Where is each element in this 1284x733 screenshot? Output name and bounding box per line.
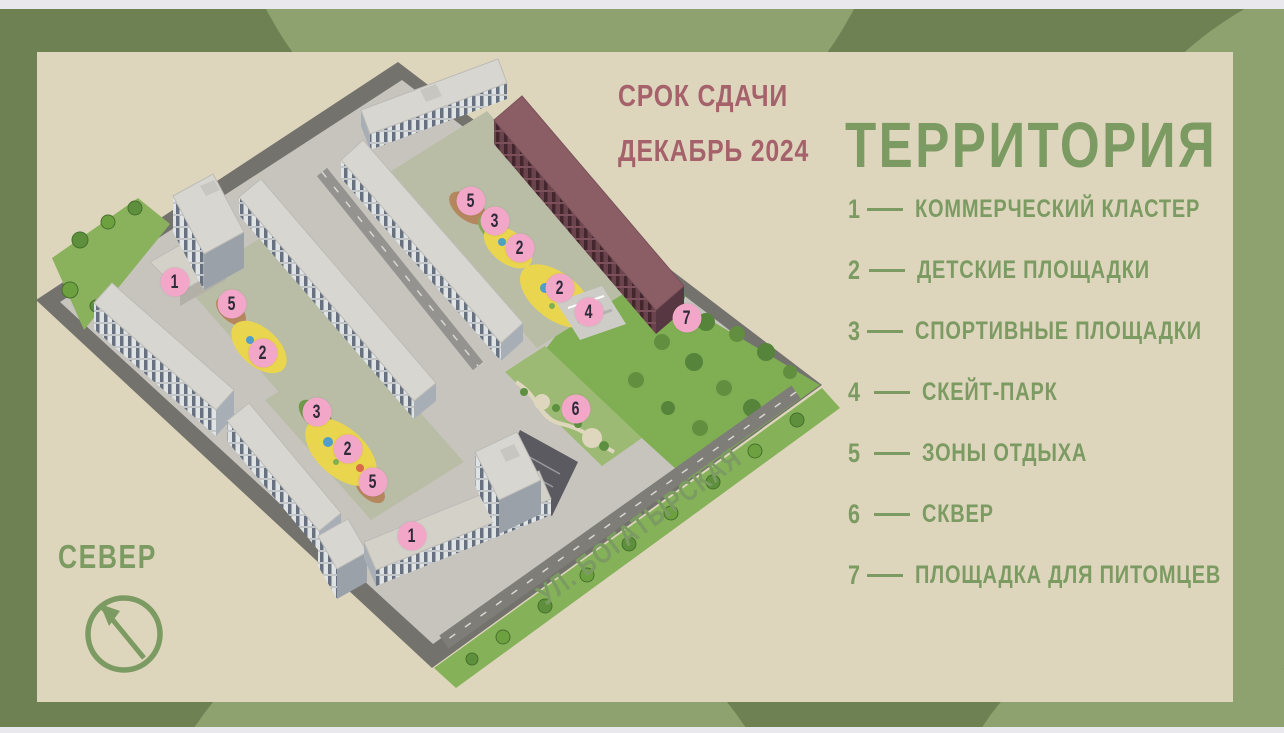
legend-item-dash — [867, 574, 903, 577]
legend-item-label: ДЕТСКИЕ ПЛОЩАДКИ — [917, 256, 1150, 285]
territory-legend: 1 КОММЕРЧЕСКИЙ КЛАСТЕР 2 ДЕТСКИЕ ПЛОЩАДК… — [848, 196, 1208, 623]
legend-item-dash — [869, 269, 905, 272]
legend-item: 4 СКЕЙТ-ПАРК — [848, 379, 1208, 405]
legend-item: 6 СКВЕР — [848, 501, 1208, 527]
legend-item-number: 4 — [848, 377, 860, 408]
map-marker: 2 — [334, 435, 363, 464]
north-label: СЕВЕР — [58, 538, 182, 576]
map-marker: 2 — [546, 274, 575, 303]
legend-item-number: 6 — [848, 499, 860, 530]
legend-item-dash — [874, 391, 910, 394]
map-marker: 5 — [457, 187, 486, 216]
map-marker: 1 — [161, 268, 190, 297]
map-marker: 6 — [562, 395, 591, 424]
territory-title: ТЕРРИТОРИЯ — [845, 108, 1284, 182]
legend-item-label: ПЛОЩАДКА ДЛЯ ПИТОМЦЕВ — [915, 561, 1221, 590]
legend-item-dash — [867, 208, 903, 211]
legend-item-number: 7 — [848, 560, 860, 591]
legend-item-dash — [867, 330, 903, 333]
map-marker: 3 — [481, 207, 510, 236]
legend-item-label: СКВЕР — [922, 500, 994, 529]
legend-item-number: 2 — [848, 255, 860, 286]
legend-item-label: СКЕЙТ-ПАРК — [922, 378, 1058, 407]
map-marker: 5 — [359, 468, 388, 497]
map-marker: 4 — [575, 298, 604, 327]
legend-item-number: 5 — [848, 438, 860, 469]
slide-canvas: { "colors": { "frame_green": "#6d8153", … — [0, 0, 1284, 733]
map-marker: 2 — [506, 234, 535, 263]
legend-item-number: 1 — [848, 194, 860, 225]
legend-item-number: 3 — [848, 316, 860, 347]
legend-item-label: КОММЕРЧЕСКИЙ КЛАСТЕР — [915, 195, 1200, 224]
text-overlay: СРОК СДАЧИ ДЕКАБРЬ 2024 ТЕРРИТОРИЯ 1 КОМ… — [0, 0, 1284, 733]
map-marker: 2 — [249, 339, 278, 368]
map-marker: 7 — [673, 304, 702, 333]
map-marker: 3 — [303, 398, 332, 427]
legend-item-label: СПОРТИВНЫЕ ПЛОЩАДКИ — [915, 317, 1202, 346]
completion-note-line2: ДЕКАБРЬ 2024 — [618, 123, 809, 178]
legend-item: 2 ДЕТСКИЕ ПЛОЩАДКИ — [848, 257, 1208, 283]
legend-item: 5 ЗОНЫ ОТДЫХА — [848, 440, 1208, 466]
completion-note: СРОК СДАЧИ ДЕКАБРЬ 2024 — [618, 68, 857, 178]
legend-item: 7 ПЛОЩАДКА ДЛЯ ПИТОМЦЕВ — [848, 562, 1208, 588]
map-marker: 5 — [218, 290, 247, 319]
completion-note-line1: СРОК СДАЧИ — [618, 68, 788, 123]
legend-item: 1 КОММЕРЧЕСКИЙ КЛАСТЕР — [848, 196, 1208, 222]
legend-item: 3 СПОРТИВНЫЕ ПЛОЩАДКИ — [848, 318, 1208, 344]
legend-item-dash — [874, 452, 910, 455]
legend-item-label: ЗОНЫ ОТДЫХА — [922, 439, 1087, 468]
map-marker: 1 — [398, 522, 427, 551]
legend-item-dash — [874, 513, 910, 516]
compass-icon — [76, 586, 172, 682]
